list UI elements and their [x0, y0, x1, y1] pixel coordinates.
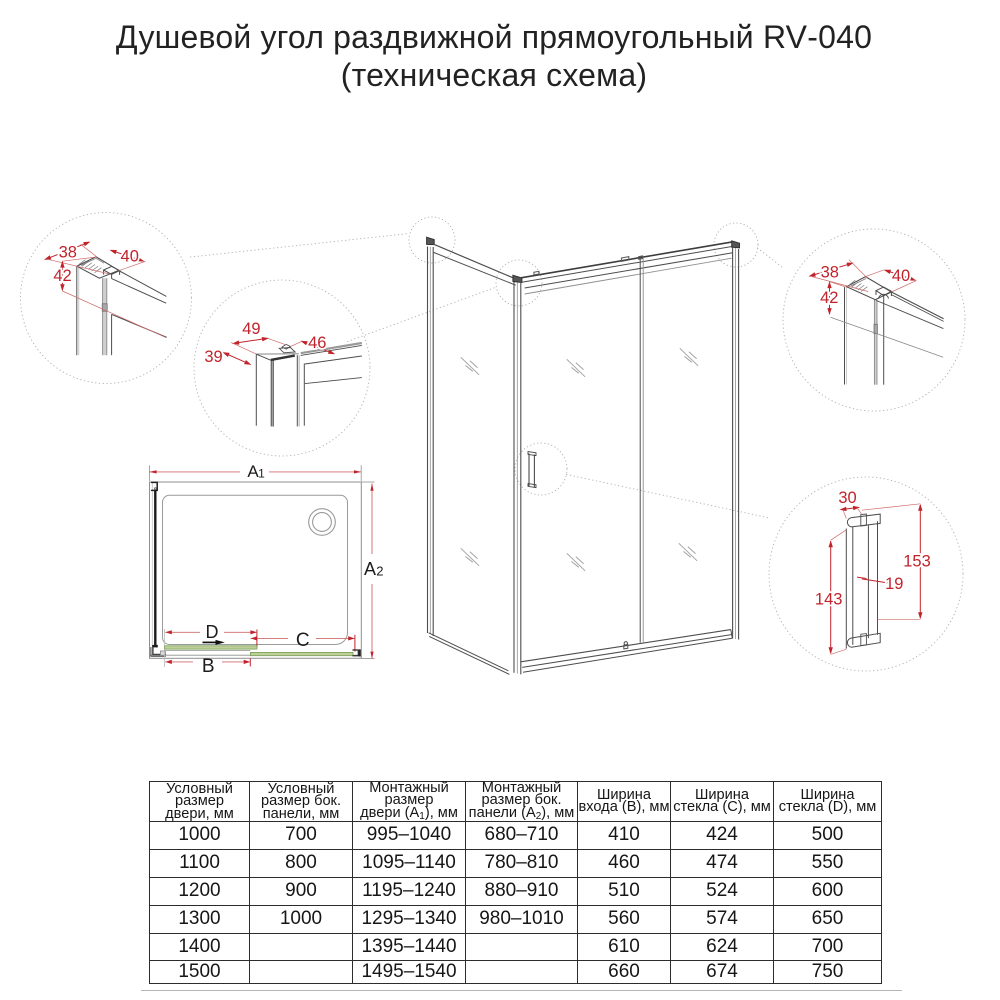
svg-text:40: 40	[121, 247, 139, 265]
svg-text:39: 39	[204, 348, 222, 366]
svg-text:49: 49	[242, 320, 260, 338]
svg-text:143: 143	[815, 591, 843, 609]
svg-text:19: 19	[885, 575, 903, 593]
svg-text:30: 30	[838, 489, 856, 507]
svg-text:42: 42	[53, 267, 71, 285]
svg-text:1: 1	[258, 467, 265, 481]
svg-text:A: A	[364, 559, 376, 579]
svg-text:38: 38	[821, 263, 839, 281]
svg-text:C: C	[296, 630, 310, 651]
svg-text:46: 46	[308, 334, 326, 352]
svg-text:153: 153	[903, 553, 931, 571]
svg-text:D: D	[206, 622, 219, 642]
svg-text:B: B	[202, 656, 215, 677]
svg-text:2: 2	[376, 563, 383, 578]
svg-text:42: 42	[820, 289, 838, 307]
svg-text:38: 38	[59, 243, 77, 261]
svg-text:40: 40	[892, 267, 910, 285]
